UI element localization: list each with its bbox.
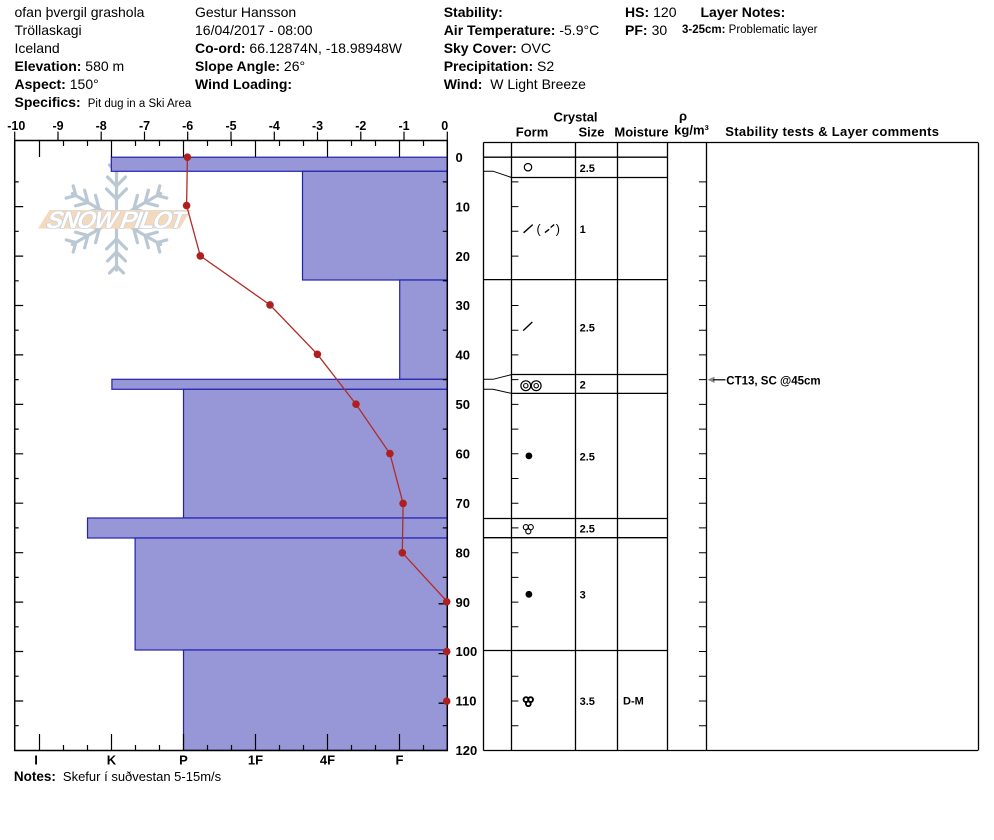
svg-text:-4: -4 bbox=[269, 119, 280, 133]
svg-text:10: 10 bbox=[456, 199, 470, 214]
svg-text:0: 0 bbox=[441, 119, 448, 133]
svg-text:F: F bbox=[396, 752, 404, 767]
svg-text:-2: -2 bbox=[355, 119, 366, 133]
svg-text:D-M: D-M bbox=[623, 695, 644, 707]
svg-text:70: 70 bbox=[456, 496, 470, 511]
svg-text:-9: -9 bbox=[52, 119, 63, 133]
svg-text:-7: -7 bbox=[139, 119, 150, 133]
svg-text:): ) bbox=[556, 223, 560, 237]
svg-text:4F: 4F bbox=[320, 752, 335, 767]
svg-text:-10: -10 bbox=[7, 119, 25, 133]
svg-text:ρ: ρ bbox=[679, 109, 687, 124]
svg-text:0: 0 bbox=[456, 150, 463, 165]
svg-text:Moisture: Moisture bbox=[614, 125, 668, 140]
svg-text:120: 120 bbox=[456, 743, 478, 758]
svg-text:20: 20 bbox=[456, 249, 470, 264]
svg-text:90: 90 bbox=[456, 595, 470, 610]
svg-text:110: 110 bbox=[456, 694, 477, 709]
svg-text:kg/m³: kg/m³ bbox=[674, 123, 709, 138]
svg-text:Size: Size bbox=[578, 125, 604, 140]
svg-text:100: 100 bbox=[456, 644, 478, 659]
svg-text:1: 1 bbox=[580, 224, 586, 236]
svg-text:Stability tests & Layer commen: Stability tests & Layer comments bbox=[725, 124, 939, 139]
svg-text:CT13, SC @45cm: CT13, SC @45cm bbox=[726, 375, 820, 387]
svg-text:3: 3 bbox=[580, 590, 586, 602]
svg-text:50: 50 bbox=[456, 397, 470, 412]
svg-text:K: K bbox=[107, 752, 117, 767]
svg-text:3.5: 3.5 bbox=[580, 696, 595, 708]
svg-text:P: P bbox=[179, 752, 188, 767]
svg-text:Form: Form bbox=[516, 125, 549, 140]
svg-text:-6: -6 bbox=[182, 119, 193, 133]
svg-text:2.5: 2.5 bbox=[580, 524, 595, 536]
svg-text:2.5: 2.5 bbox=[580, 163, 595, 175]
svg-text:80: 80 bbox=[456, 545, 470, 560]
svg-text:SNOW PILOT: SNOW PILOT bbox=[43, 208, 192, 234]
svg-text:-8: -8 bbox=[96, 119, 107, 133]
svg-text:-3: -3 bbox=[312, 119, 323, 133]
svg-text:Crystal: Crystal bbox=[553, 110, 597, 125]
svg-text:2: 2 bbox=[580, 380, 586, 392]
svg-text:(: ( bbox=[537, 223, 542, 237]
svg-text:I: I bbox=[34, 752, 38, 767]
svg-text:-5: -5 bbox=[225, 119, 236, 133]
svg-text:1F: 1F bbox=[248, 752, 263, 767]
svg-text:40: 40 bbox=[456, 348, 470, 363]
svg-text:-1: -1 bbox=[398, 119, 409, 133]
svg-text:2.5: 2.5 bbox=[580, 452, 595, 464]
svg-text:30: 30 bbox=[456, 298, 470, 313]
svg-text:2.5: 2.5 bbox=[580, 323, 595, 335]
svg-text:60: 60 bbox=[456, 447, 470, 462]
